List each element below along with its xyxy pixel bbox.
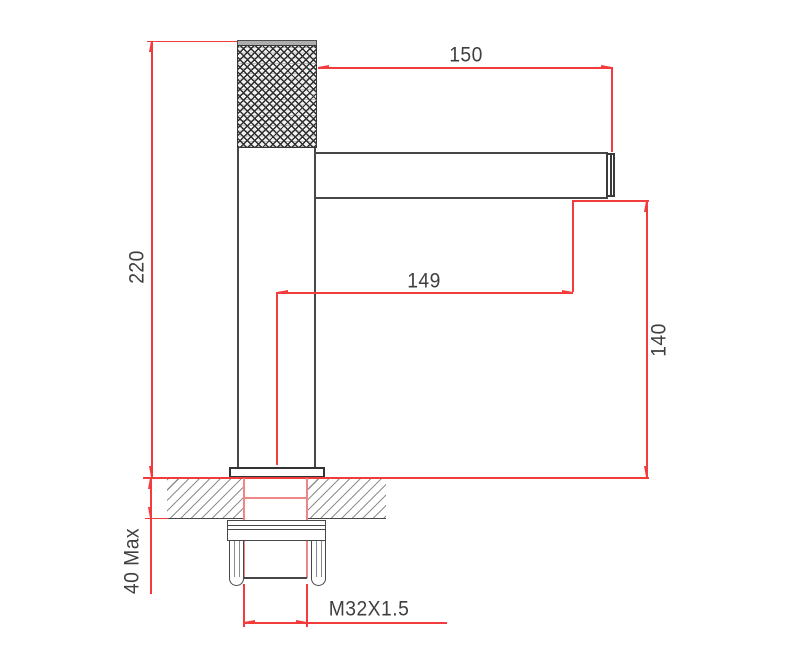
stud-left-highlight-2 bbox=[239, 541, 240, 578]
dim-150-line bbox=[318, 67, 612, 69]
dim-label-deck-thickness: 40 Max bbox=[122, 528, 143, 594]
mounting-shank-inner-line bbox=[244, 497, 307, 499]
dim-m32-line bbox=[244, 622, 447, 624]
dim-m32-arrow-right-icon bbox=[296, 620, 307, 624]
washer-line-2 bbox=[228, 529, 325, 530]
knurled-handle bbox=[237, 45, 317, 148]
dim-220-arrow-up-icon bbox=[149, 41, 153, 52]
countertop-hatch-right bbox=[307, 479, 386, 519]
dim-220-extension-line bbox=[147, 41, 237, 43]
dim-label-thread-spec: M32X1.5 bbox=[329, 599, 410, 620]
dim-220-line bbox=[151, 41, 153, 477]
dim-220-arrow-down-icon bbox=[149, 466, 153, 477]
dim-140-arrow-up-icon bbox=[644, 201, 648, 212]
mounting-stud-left bbox=[229, 541, 244, 578]
dim-label-overall-height: 220 bbox=[127, 250, 148, 284]
stud-right-highlight-1 bbox=[316, 541, 317, 578]
dim-149-extension-line bbox=[572, 200, 574, 292]
countertop-hatch-left bbox=[167, 479, 243, 519]
dim-m32-arrow-left-icon bbox=[244, 620, 255, 624]
technical-drawing-canvas: 220 150 149 140 40 Max M32X1.5 bbox=[0, 0, 800, 667]
dim-40max-arrow-down-icon bbox=[148, 507, 152, 518]
dim-140-arrow-down-icon bbox=[644, 466, 648, 477]
dim-40max-extension-line bbox=[145, 518, 168, 520]
dim-140-extension-line bbox=[573, 200, 649, 202]
washer-line-1 bbox=[228, 525, 325, 526]
dim-40max-line bbox=[150, 478, 152, 594]
mounting-stud-right bbox=[311, 541, 326, 578]
spout-aerator-cap bbox=[606, 153, 615, 197]
mounting-stud-left-cap bbox=[229, 577, 244, 586]
dim-40max-arrow-up-icon bbox=[148, 478, 152, 489]
dim-label-spout-length: 150 bbox=[449, 45, 483, 66]
dim-150-extension-line bbox=[611, 67, 613, 152]
dim-149-arrow-left-icon bbox=[277, 290, 288, 294]
dim-150-arrow-left-icon bbox=[318, 65, 329, 69]
faucet-centerline bbox=[276, 292, 278, 465]
dim-149-arrow-right-icon bbox=[562, 290, 573, 294]
dim-label-outlet-height: 140 bbox=[649, 323, 670, 357]
stud-left-highlight-1 bbox=[234, 541, 235, 578]
mounting-stud-right-cap bbox=[311, 577, 326, 586]
thread-shank-bottom-line bbox=[244, 577, 307, 579]
dim-label-spout-reach: 149 bbox=[407, 271, 441, 292]
spout-aerator-cap-line bbox=[610, 155, 612, 195]
stud-right-highlight-2 bbox=[321, 541, 322, 578]
faucet-spout bbox=[316, 152, 608, 199]
locknut-washer bbox=[227, 520, 326, 541]
